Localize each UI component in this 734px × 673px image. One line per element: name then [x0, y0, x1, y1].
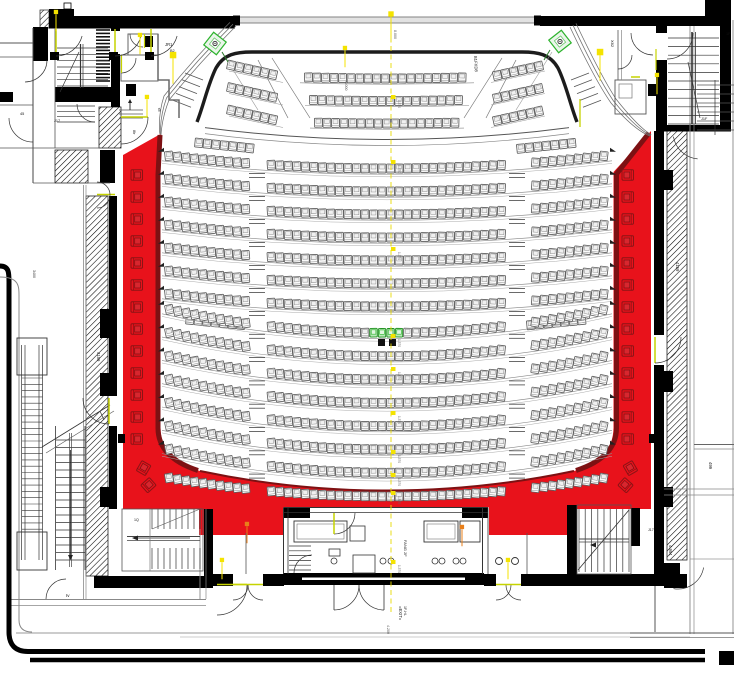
svg-text:4.954: 4.954 [668, 545, 673, 556]
svg-text:1.370: 1.370 [397, 100, 401, 108]
svg-text:=EXIT=: =EXIT= [398, 606, 403, 621]
svg-text:1.370: 1.370 [397, 416, 401, 424]
svg-text:JR1: JR1 [165, 42, 173, 47]
svg-text:B1FXD8: B1FXD8 [473, 56, 479, 73]
svg-text:1.370: 1.370 [397, 496, 401, 504]
svg-text:1.370: 1.370 [397, 372, 401, 380]
svg-text:J17: J17 [648, 528, 654, 532]
svg-text:J17: J17 [54, 119, 60, 123]
svg-text:X62: X62 [610, 40, 615, 48]
svg-text:1Q: 1Q [134, 518, 139, 522]
svg-text:8.000: 8.000 [393, 30, 397, 39]
svg-text:1.370: 1.370 [397, 478, 401, 486]
svg-text:4.200: 4.200 [386, 625, 390, 634]
svg-text:J1F: J1F [701, 117, 708, 121]
svg-text:1.370: 1.370 [397, 252, 401, 260]
svg-text:499: 499 [708, 462, 713, 470]
svg-text:8.000: 8.000 [344, 82, 348, 91]
svg-text:x8: x8 [157, 107, 162, 111]
svg-text:FANG 2F: FANG 2F [403, 540, 408, 557]
svg-text:8Ir: 8Ir [132, 130, 136, 135]
svg-text:3400: 3400 [32, 270, 36, 278]
svg-text:1.370: 1.370 [397, 565, 401, 573]
svg-text:B2: B2 [170, 49, 175, 53]
svg-text:1.370: 1.370 [397, 339, 401, 347]
svg-text:4159: 4159 [675, 262, 680, 272]
svg-text:1.370: 1.370 [397, 455, 401, 463]
svg-text:1.370: 1.370 [397, 165, 401, 173]
svg-text:1F-HL: 1F-HL [403, 606, 407, 616]
svg-text:1F: 1F [726, 32, 731, 36]
svg-text:45: 45 [20, 112, 24, 116]
svg-text:4159: 4159 [96, 352, 101, 362]
